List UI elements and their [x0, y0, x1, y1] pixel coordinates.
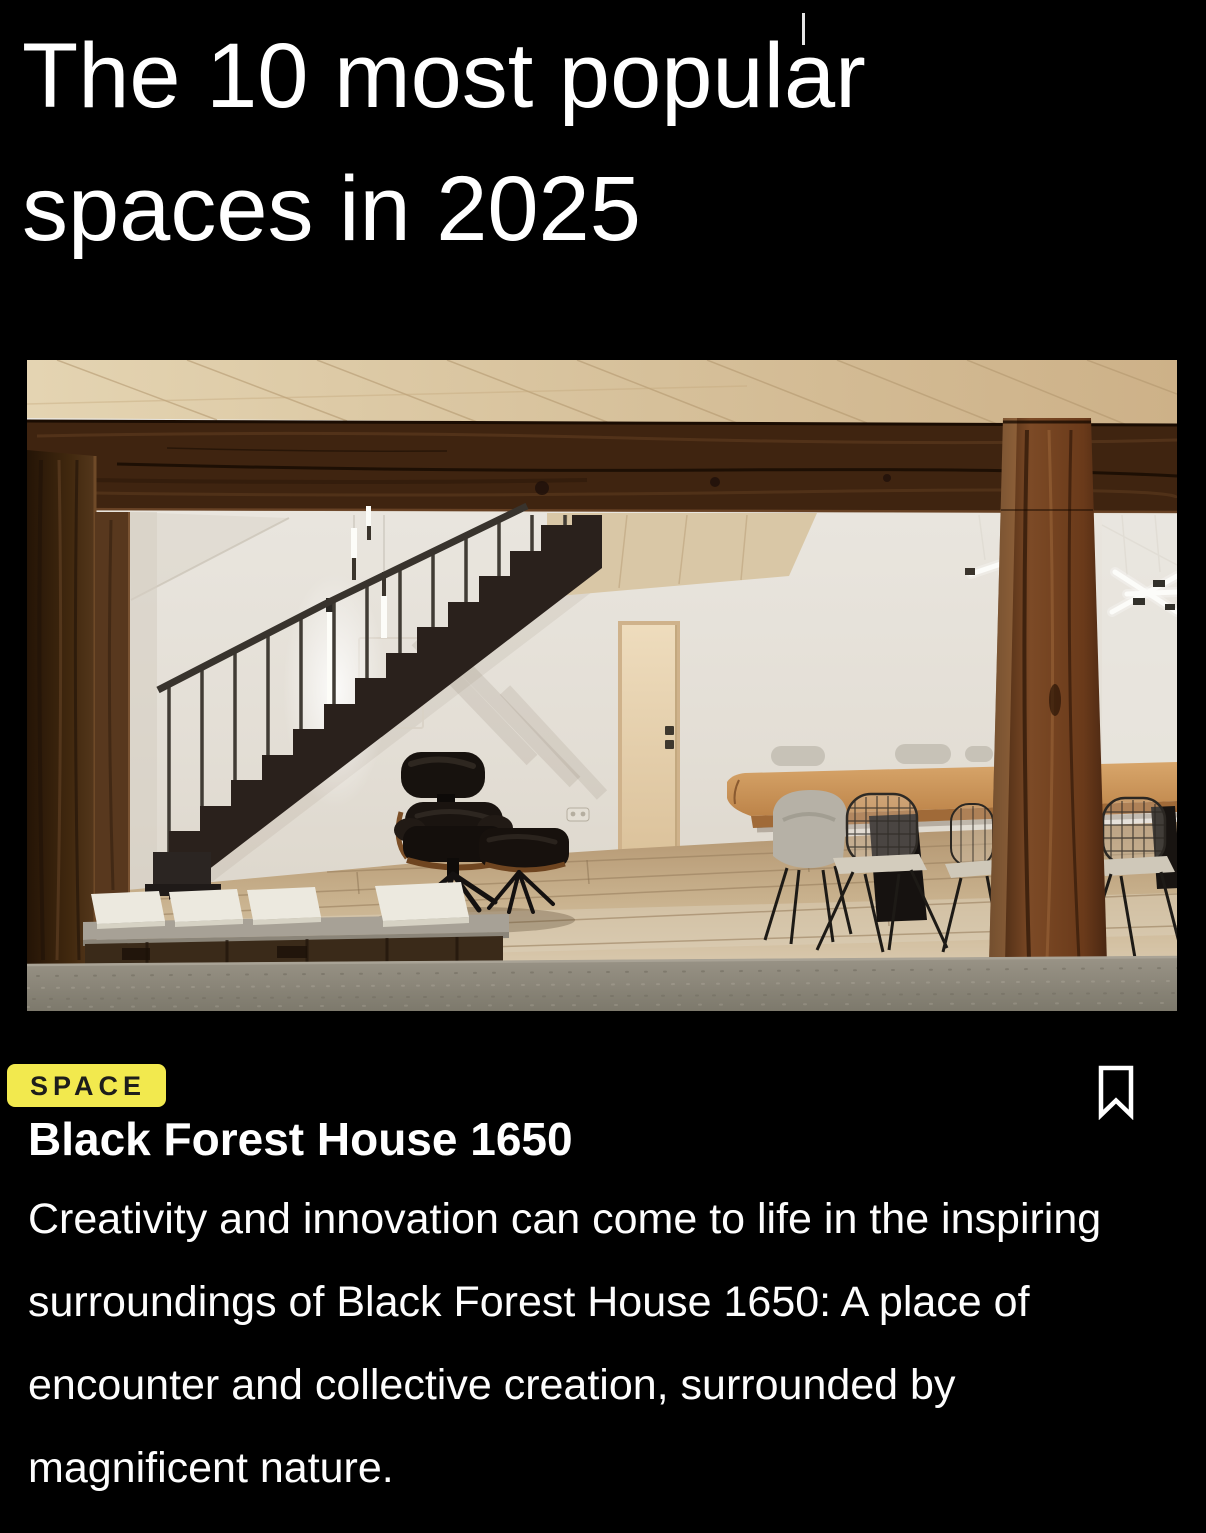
cushion-bench	[83, 882, 509, 972]
wooden-door	[618, 621, 680, 850]
category-badge[interactable]: SPACE	[7, 1064, 166, 1107]
power-socket	[567, 808, 589, 821]
article-title: The 10 most popular spaces in 2025	[22, 10, 1032, 276]
article-headline[interactable]: Black Forest House 1650	[28, 1112, 573, 1167]
right-timber-post	[989, 418, 1107, 964]
left-timber-post	[27, 450, 129, 967]
article-description: Creativity and innovation can come to li…	[28, 1178, 1168, 1510]
bookmark-button[interactable]	[1094, 1064, 1138, 1122]
wood-ceiling	[27, 360, 1177, 426]
stair-foot	[153, 852, 211, 888]
bookmark-icon	[1096, 1064, 1136, 1120]
stone-counter	[27, 956, 1177, 1011]
article-image[interactable]	[27, 360, 1177, 1011]
text-caret-artifact	[802, 13, 805, 45]
article-page: The 10 most popular spaces in 2025	[0, 0, 1206, 1533]
